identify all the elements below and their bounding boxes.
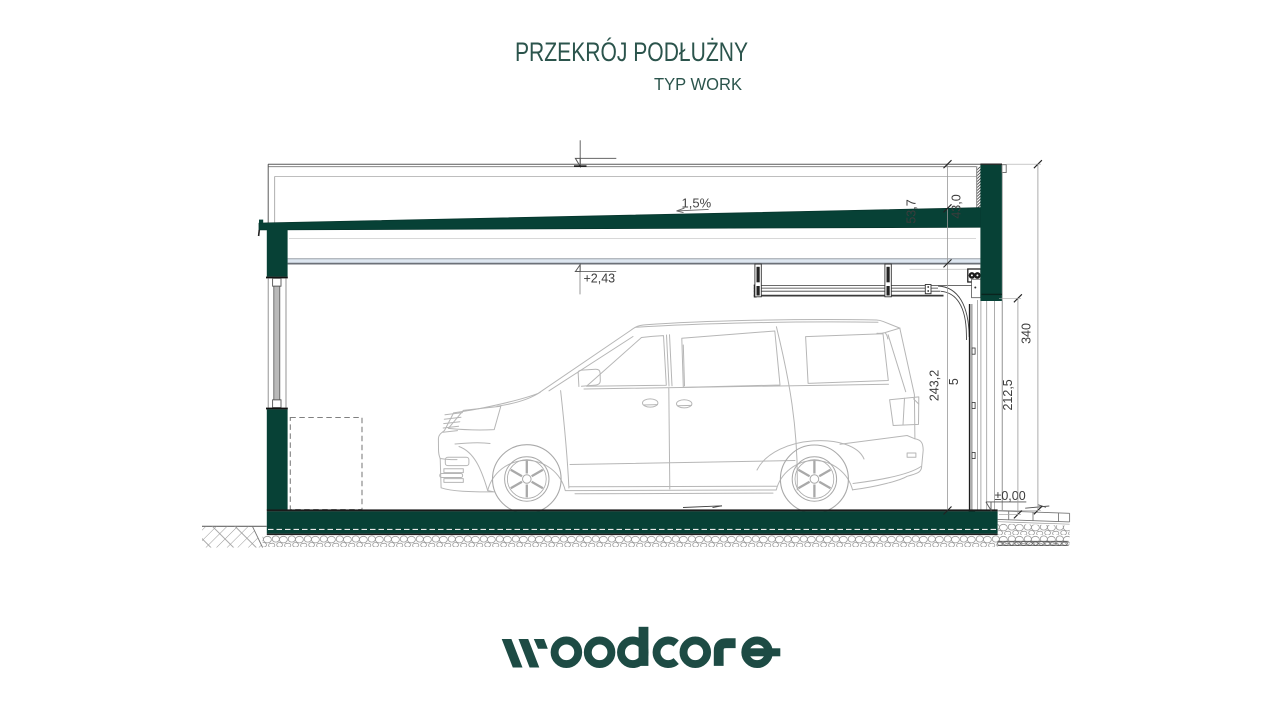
svg-text:53,7: 53,7 (905, 199, 919, 223)
svg-text:1,5%: 1,5% (682, 195, 712, 210)
svg-text:±0,00: ±0,00 (995, 489, 1026, 503)
svg-text:340: 340 (1020, 323, 1034, 344)
svg-text:243,2: 243,2 (928, 370, 942, 401)
svg-text:212,5: 212,5 (1001, 379, 1015, 410)
svg-text:43,0: 43,0 (950, 194, 964, 218)
svg-text:5: 5 (947, 378, 961, 385)
svg-text:+2,43: +2,43 (584, 271, 616, 285)
svg-text:TYP WORK: TYP WORK (654, 74, 742, 94)
svg-text:PRZEKRÓJ PODŁUŻNY: PRZEKRÓJ PODŁUŻNY (515, 36, 748, 67)
